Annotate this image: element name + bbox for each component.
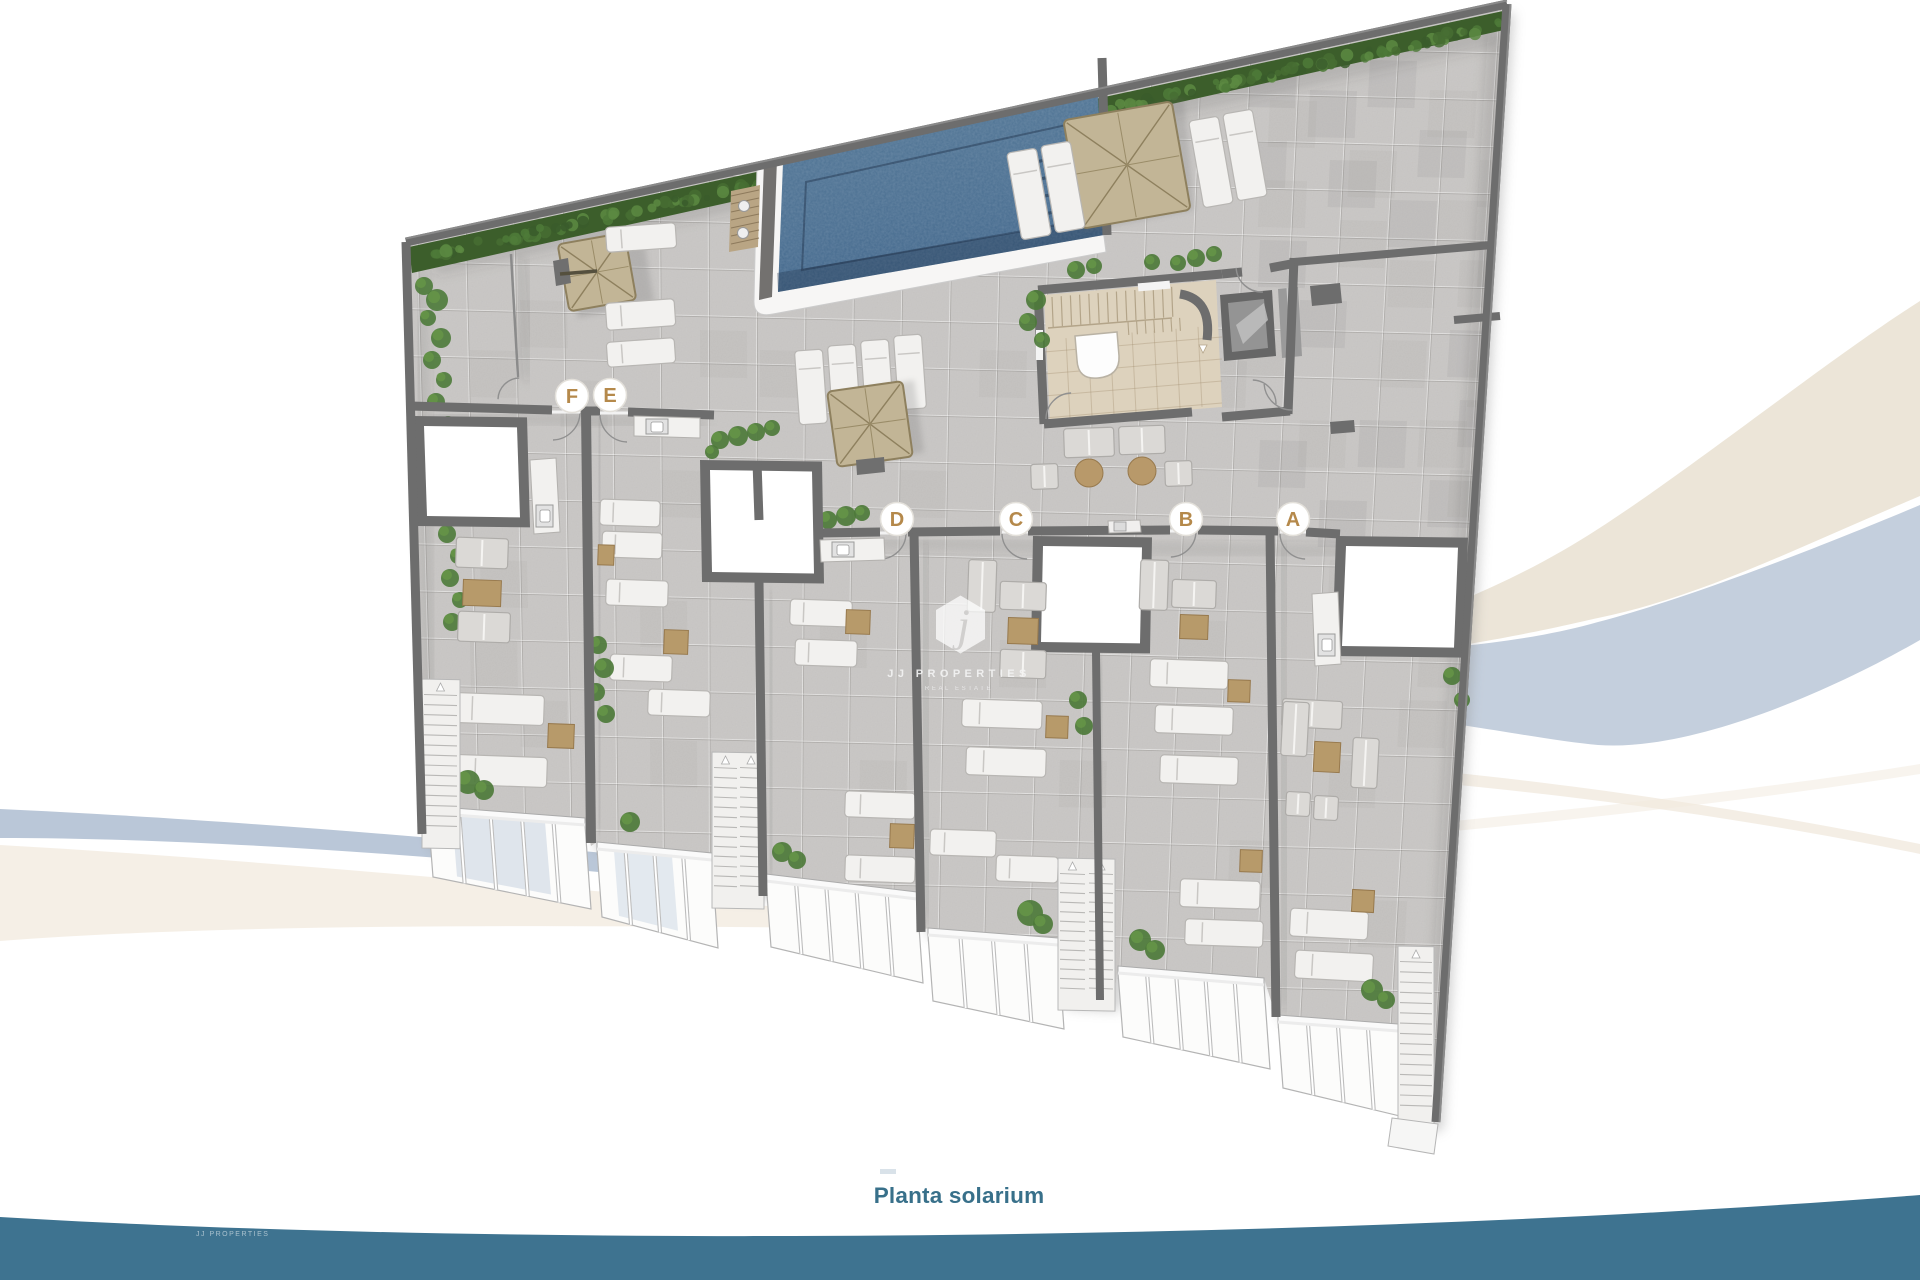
svg-text:A: A	[1286, 509, 1300, 531]
svg-text:F: F	[566, 386, 578, 408]
svg-text:B: B	[1179, 509, 1193, 531]
svg-text:JJ PROPERTIES: JJ PROPERTIES	[196, 1231, 269, 1238]
svg-text:E: E	[603, 385, 616, 407]
svg-text:Planta solarium: Planta solarium	[874, 1183, 1045, 1208]
svg-text:D: D	[890, 509, 904, 531]
svg-text:JJ PROPERTIES: JJ PROPERTIES	[887, 668, 1030, 680]
svg-text:C: C	[1009, 509, 1023, 531]
svg-text:REAL ESTATE: REAL ESTATE	[925, 686, 993, 692]
